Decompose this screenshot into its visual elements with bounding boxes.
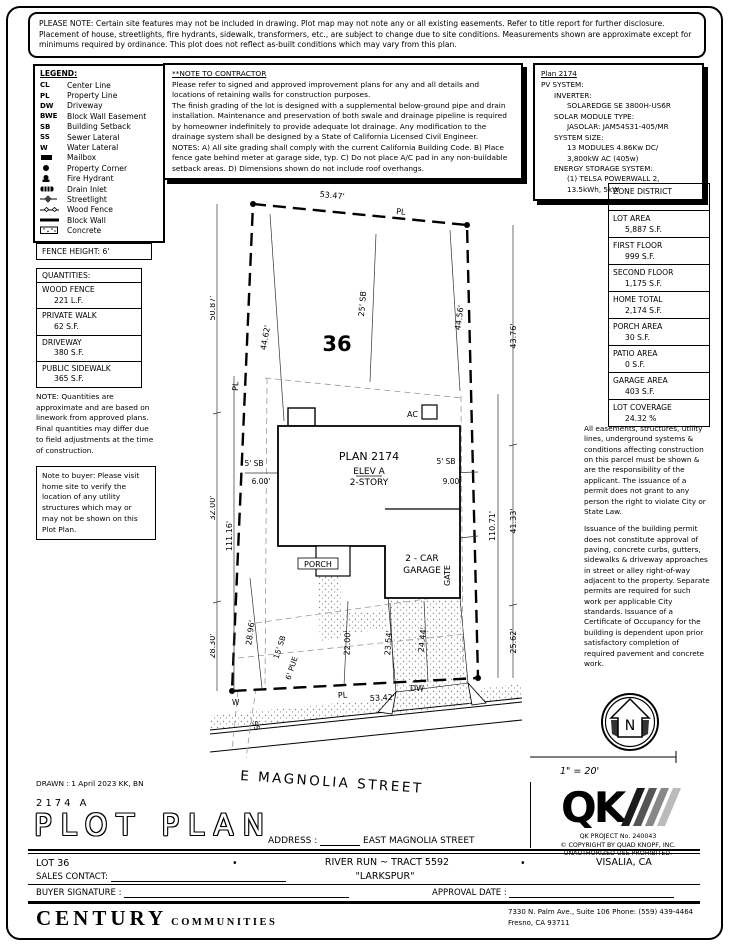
legend-item: SSSewer Lateral xyxy=(40,132,158,142)
dim-side-left: 6.00' xyxy=(252,477,271,486)
pv-line: SYSTEM SIZE: xyxy=(541,133,696,143)
builder-name: CENTURY xyxy=(36,906,167,930)
property-corner-icon xyxy=(40,164,67,172)
approval-date-blank-line xyxy=(509,888,674,898)
table-row: PATIO AREA0 S.F. xyxy=(609,346,709,373)
drain-inlet-icon xyxy=(40,185,67,193)
buyer-signature-blank-line xyxy=(124,888,349,898)
qk-project-number: QK PROJECT No. 240043 xyxy=(534,833,702,842)
easement-para1: All easements, structures, utility lines… xyxy=(584,424,710,517)
sheet-title: PLOT PLAN xyxy=(34,808,273,842)
address-value: EAST MAGNOLIA STREET xyxy=(363,836,475,846)
address-row: ADDRESS : EAST MAGNOLIA STREET xyxy=(268,836,475,846)
easement-para2: Issuance of the building permit does not… xyxy=(584,524,710,669)
contractor-note-para3: NOTES: A) All site grading shall comply … xyxy=(172,143,514,175)
dim-pue: 6' PUE xyxy=(284,655,300,681)
disclaimer-note: PLEASE NOTE: Certain site features may n… xyxy=(28,12,706,58)
streetlight-icon xyxy=(40,195,67,203)
ac-label: AC xyxy=(407,410,418,419)
pv-line: SOLAREDGE SE 3800H-US6R xyxy=(541,101,696,111)
city-label: VISALIA, CA xyxy=(596,857,652,868)
legend-item: SBBuilding Setback xyxy=(40,122,158,132)
dim-left-lower2: 28.96' xyxy=(244,620,256,646)
dim-left-lower: 28.30' xyxy=(210,633,217,658)
block-wall-icon xyxy=(40,216,67,224)
dim-bottom: 53.42' xyxy=(370,693,396,703)
pl-label-top: PL xyxy=(396,207,407,217)
table-row: PORCH AREA30 S.F. xyxy=(609,319,709,346)
pv-title: Plan 2174 xyxy=(541,69,696,79)
builder-address-line2: Fresno, CA 93711 xyxy=(508,918,693,929)
driveway-symbol: DW xyxy=(40,102,67,110)
legend-item: PLProperty Line xyxy=(40,90,158,100)
water-lateral-symbol: W xyxy=(40,144,67,152)
builder-name-suffix: COMMUNITIES xyxy=(171,917,277,928)
property-line-symbol: PL xyxy=(40,92,67,100)
wood-fence-icon xyxy=(40,206,67,214)
compass-n-label: N xyxy=(625,718,635,734)
dim-right-inner: 110.71' xyxy=(488,511,497,541)
sales-contact-row: SALES CONTACT: xyxy=(36,872,286,882)
builder-address-line1: 7330 N. Palm Ave., Suite 106 Phone: (559… xyxy=(508,907,693,918)
double-rule xyxy=(28,853,700,854)
dim-side-right: 9.00' xyxy=(443,477,462,486)
street-name: E MAGNOLIA STREET xyxy=(240,768,424,797)
pv-line: ENERGY STORAGE SYSTEM: xyxy=(541,164,696,174)
dw-label: DW xyxy=(410,684,424,693)
building-setback-symbol: SB xyxy=(40,123,67,131)
legend-item: Concrete xyxy=(40,225,158,235)
double-rule xyxy=(28,849,700,851)
contractor-note-para1: Please refer to signed and approved impr… xyxy=(172,80,514,101)
separator-bullet: • xyxy=(232,858,238,869)
quantities-row: PUBLIC SIDEWALK365 S.F. xyxy=(37,362,141,387)
thick-rule xyxy=(28,901,700,904)
dim-side-setback-right: 5' SB xyxy=(436,457,455,466)
house-elev-label: ELEV A xyxy=(353,467,385,477)
dim-front-setback: 25' SB xyxy=(357,291,368,317)
dim-left-mid: 32.00' xyxy=(210,495,217,520)
dim-right-lower: 25.62' xyxy=(509,628,518,653)
porch-label: PORCH xyxy=(304,560,332,569)
buyer-signature-row: BUYER SIGNATURE : xyxy=(36,888,349,898)
contractor-note-para2: The finish grading of the lot is designe… xyxy=(172,101,514,143)
legend-item: CLCenter Line xyxy=(40,80,158,90)
legend-box: LEGEND: CLCenter Line PLProperty Line DW… xyxy=(33,64,165,243)
mailbox-icon xyxy=(40,154,67,162)
disclaimer-text: PLEASE NOTE: Certain site features may n… xyxy=(39,19,691,49)
builder-address: 7330 N. Palm Ave., Suite 106 Phone: (559… xyxy=(508,907,693,928)
dim-walk2: 23.54' xyxy=(383,630,394,656)
pv-line: JASOLAR: JAM54S31-405/MR xyxy=(541,122,696,132)
easement-notes: All easements, structures, utility lines… xyxy=(584,424,710,676)
titleblock-divider xyxy=(530,782,531,848)
site-data-table: ZONE DISTRICTR-1-5 LOT AREA5,887 S.F. FI… xyxy=(608,183,710,427)
garage-label2: GARAGE xyxy=(403,566,441,576)
qk-logo-block: QK QK PROJECT No. 240043 © COPYRIGHT BY … xyxy=(534,786,702,859)
dim-diag-left: 44.62' xyxy=(259,324,272,350)
table-row: LOT COVERAGE24.32 % xyxy=(609,400,709,426)
legend-title: LEGEND: xyxy=(40,69,158,78)
legend-item: WWater Lateral xyxy=(40,142,158,152)
dim-top: 53.47' xyxy=(319,190,345,201)
fire-hydrant-icon xyxy=(40,174,67,183)
block-wall-easement-symbol: BWE xyxy=(40,112,67,120)
address-label: ADDRESS : xyxy=(268,836,317,846)
pv-line: PV SYSTEM: xyxy=(541,80,696,90)
pv-line: 13 MODULES 4.86Kw DC/ xyxy=(541,143,696,153)
buyer-signature-label: BUYER SIGNATURE : xyxy=(36,888,121,898)
pl-label-bottom: PL xyxy=(338,690,348,700)
community-name: "LARKSPUR" xyxy=(300,871,470,882)
legend-item: Streetlight xyxy=(40,194,158,204)
scale-label: 1" = 20' xyxy=(560,766,599,777)
scale-bar xyxy=(528,748,688,766)
dim-walk1: 22.00' xyxy=(343,630,353,655)
table-row: FIRST FLOOR999 S.F. xyxy=(609,238,709,265)
dim-side-setback-left: 5' SB xyxy=(244,459,263,468)
water-lateral-label: W xyxy=(232,698,240,707)
house-plan-label: PLAN 2174 xyxy=(339,450,399,463)
contractor-note-title: **NOTE TO CONTRACTOR xyxy=(172,69,514,80)
quantities-row: PRIVATE WALK62 S.F. xyxy=(37,309,141,335)
fence-height-box: FENCE HEIGHT: 6' xyxy=(36,243,152,260)
sales-contact-label: SALES CONTACT: xyxy=(36,872,108,882)
table-row: SECOND FLOOR1,175 S.F. xyxy=(609,265,709,292)
sales-contact-blank-line xyxy=(111,872,286,882)
thin-rule xyxy=(28,884,700,885)
quantities-note: NOTE: Quantities are approximate and are… xyxy=(36,392,156,456)
table-row: HOME TOTAL2,174 S.F. xyxy=(609,292,709,319)
table-row: GARAGE AREA403 S.F. xyxy=(609,373,709,400)
separator-bullet: • xyxy=(520,858,526,869)
lot-number: 36 xyxy=(322,332,351,356)
quantities-title: QUANTITIES: xyxy=(37,269,141,283)
dim-right-mid: 41.33' xyxy=(509,508,518,533)
centerline-symbol: CL xyxy=(40,81,67,89)
approval-date-label: APPROVAL DATE : xyxy=(432,888,507,898)
builder-logo: CENTURY COMMUNITIES xyxy=(36,906,277,931)
legend-item: Wood Fence xyxy=(40,205,158,215)
legend-item: BWEBlock Wall Easement xyxy=(40,111,158,121)
qk-logo: QK xyxy=(543,786,693,828)
qk-logo-text: QK xyxy=(561,786,628,828)
dim-left-inner: 111.16' xyxy=(225,521,234,551)
table-row: ZONE DISTRICTR-1-5 xyxy=(609,184,709,211)
garage-label1: 2 - CAR xyxy=(405,554,438,564)
legend-item: Mailbox xyxy=(40,153,158,163)
contractor-note-box: **NOTE TO CONTRACTOR Please refer to sig… xyxy=(163,63,523,180)
gate-label: GATE xyxy=(443,565,452,586)
sewer-lateral-symbol: SS xyxy=(40,133,67,141)
address-blank-line xyxy=(320,836,360,846)
buyer-note-box: Note to buyer: Please visit home site to… xyxy=(36,466,156,540)
legend-item: DWDriveway xyxy=(40,101,158,111)
plot-plan-sheet: PLEASE NOTE: Certain site features may n… xyxy=(0,0,729,948)
pv-line: 3,800kW AC (405w) xyxy=(541,154,696,164)
plot-drawing: 53.47' PL 25' SB 44.62' 44.56' 50.87' 43… xyxy=(210,186,522,798)
lot-label: LOT 36 xyxy=(36,858,69,869)
dim-left-upper: 50.87' xyxy=(210,295,217,320)
pv-line: SOLAR MODULE TYPE: xyxy=(541,112,696,122)
quantities-row: WOOD FENCE221 L.F. xyxy=(37,283,141,309)
house-story-label: 2-STORY xyxy=(350,478,389,488)
quantities-row: DRIVEWAY380 S.F. xyxy=(37,336,141,362)
legend-item: Drain Inlet xyxy=(40,184,158,194)
pv-line: INVERTER: xyxy=(541,91,696,101)
legend-item: Fire Hydrant xyxy=(40,174,158,184)
drawn-by-note: DRAWN : 1 April 2023 KK, BN xyxy=(36,779,144,788)
legend-item: Block Wall xyxy=(40,215,158,225)
pv-system-box: Plan 2174 PV SYSTEM: INVERTER: SOLAREDGE… xyxy=(533,63,704,201)
table-row: LOT AREA5,887 S.F. xyxy=(609,211,709,238)
north-compass-icon: N xyxy=(598,690,662,754)
legend-item: Property Corner xyxy=(40,163,158,173)
quantities-table: QUANTITIES: WOOD FENCE221 L.F. PRIVATE W… xyxy=(36,268,142,388)
tract-label: RIVER RUN ~ TRACT 5592 xyxy=(262,857,512,868)
pl-label-left: PL xyxy=(231,381,240,391)
concrete-icon xyxy=(40,226,67,235)
approval-date-row: APPROVAL DATE : xyxy=(432,888,674,898)
dim-rear-setback: 15' SB xyxy=(272,634,288,660)
dim-right-upper: 43.76' xyxy=(509,323,518,348)
